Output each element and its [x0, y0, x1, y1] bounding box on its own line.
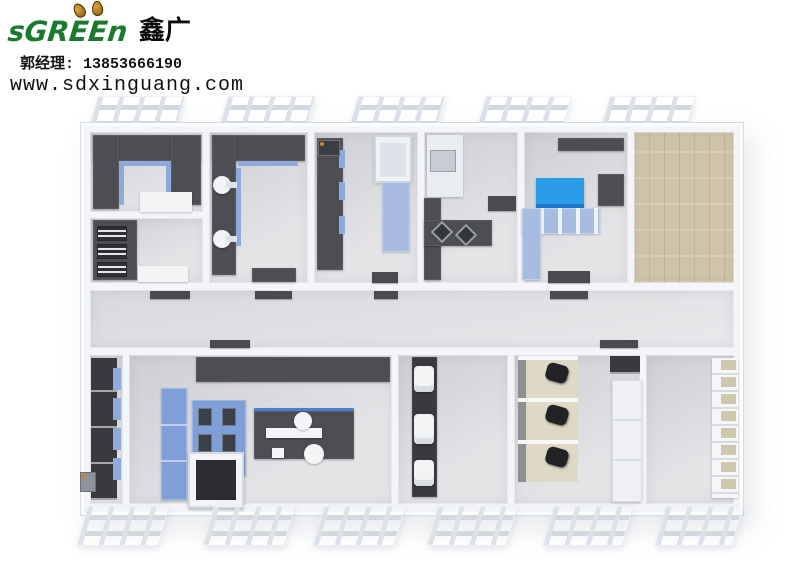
instrument-rack	[97, 226, 127, 241]
wall-bench	[558, 138, 624, 151]
shelf-side-panel	[113, 458, 121, 480]
microscope	[294, 412, 312, 430]
lab-bench	[212, 135, 236, 275]
wall-bench	[372, 272, 398, 283]
base-cabinet-trim	[339, 216, 345, 234]
base-cabinet-trim	[236, 168, 241, 246]
work-table	[138, 266, 188, 282]
lab-bench	[93, 135, 119, 209]
analyzer-device	[318, 140, 340, 156]
shelf-side-panel	[113, 368, 121, 390]
base-cabinet-trim	[238, 161, 298, 166]
fume-hood	[374, 135, 412, 183]
wood-floor-room	[634, 132, 734, 283]
lab-equipment	[266, 428, 322, 438]
shelf-side-panel	[113, 428, 121, 450]
instrument	[414, 366, 434, 392]
vent-grate	[426, 506, 517, 546]
mixer-instrument	[213, 176, 231, 194]
tall-cabinet	[612, 380, 642, 502]
doormat	[600, 340, 638, 348]
floor-plan	[0, 0, 800, 566]
analyzer-device	[80, 472, 96, 492]
wall-bench	[196, 357, 390, 382]
base-cabinet-trim	[339, 182, 345, 200]
cabinet-window	[222, 434, 236, 452]
render-canvas: sGREEn 鑫广 郭经理: 13853666190 www.sdxinguan…	[0, 0, 800, 566]
lab-bench	[252, 268, 296, 282]
storage-cabinet	[161, 388, 187, 500]
base-cabinet-trim	[119, 161, 124, 205]
instrument	[414, 460, 434, 486]
microscope	[304, 444, 324, 464]
instrument-rack	[97, 244, 127, 259]
doormat	[210, 340, 250, 348]
vent-grate	[654, 506, 743, 546]
fume-hood	[188, 452, 244, 508]
work-table	[140, 192, 192, 212]
cabinet-window	[198, 434, 212, 452]
mixer-instrument	[213, 230, 231, 248]
wall-bench	[598, 174, 624, 206]
vent-grate	[202, 506, 295, 546]
doormat	[550, 291, 588, 299]
vent-grate	[312, 506, 405, 546]
doormat	[255, 291, 292, 299]
storage-cabinet	[382, 182, 410, 252]
instrument-rack	[97, 262, 127, 277]
wall-bench	[548, 271, 590, 283]
vent-grate	[76, 506, 169, 546]
shelf-side-panel	[113, 398, 121, 420]
instrument	[414, 414, 434, 444]
lab-equipment	[272, 448, 284, 458]
vent-grate	[542, 506, 633, 546]
analyzer-device	[430, 150, 456, 172]
base-cabinet-trim	[119, 161, 171, 166]
doormat	[374, 291, 398, 299]
cabinet-window	[222, 408, 236, 426]
counter	[522, 208, 541, 280]
blue-bench	[536, 178, 584, 208]
wall-bench	[488, 196, 516, 211]
doormat	[150, 291, 190, 299]
shelf-rack	[712, 358, 738, 498]
shelf-items	[721, 360, 736, 496]
cabinet-window	[198, 408, 212, 426]
wall-cabinet	[610, 356, 640, 374]
